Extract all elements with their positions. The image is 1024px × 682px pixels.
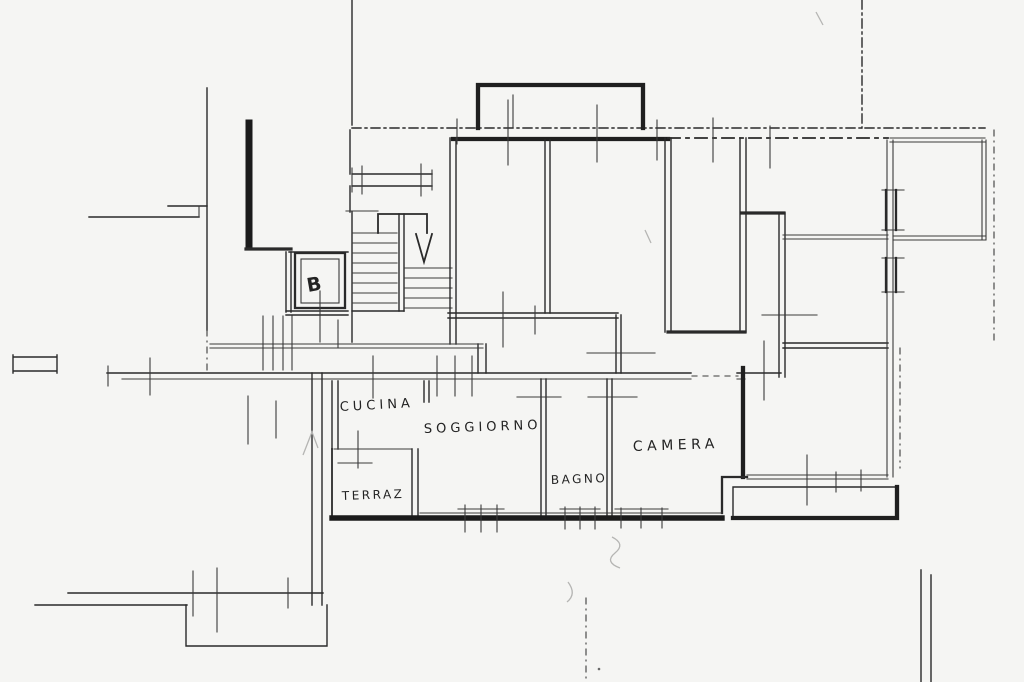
room-label-cucina: CUCINA <box>339 396 414 415</box>
exterior-step <box>186 605 327 646</box>
datum-lines <box>352 0 994 678</box>
room-label-camera: CAMERA <box>633 436 720 455</box>
pencil-marks <box>303 12 823 670</box>
upper-rooms <box>210 95 888 400</box>
room-label-terrazzo: TERRAZ <box>341 487 405 503</box>
bottom-right-stubs <box>921 570 931 682</box>
room-labels: CUCINA SOGGIORNO TERRAZ BAGNO CAMERA B <box>305 273 719 503</box>
neighbor-structures-left <box>13 88 348 373</box>
balcony-bottom-right <box>733 455 897 518</box>
stair-railing <box>378 214 427 233</box>
room-label-bagno: BAGNO <box>551 471 608 487</box>
elevator-label: B <box>305 273 323 297</box>
stair-landing-window <box>346 130 432 212</box>
stair-direction-arrow <box>416 234 432 262</box>
right-edge-walls <box>882 138 986 477</box>
scanned-floor-plan: CUCINA SOGGIORNO TERRAZ BAGNO CAMERA B <box>0 0 1024 682</box>
floor-plan-canvas: CUCINA SOGGIORNO TERRAZ BAGNO CAMERA B <box>0 0 1024 682</box>
room-label-soggiorno: SOGGIORNO <box>424 418 542 437</box>
room-bagno <box>517 379 637 518</box>
balcony-top <box>478 85 643 128</box>
stairs <box>352 212 452 342</box>
room-terrazzo <box>332 431 418 518</box>
entry-steps <box>263 316 292 370</box>
courtyard-boundary <box>35 373 327 646</box>
